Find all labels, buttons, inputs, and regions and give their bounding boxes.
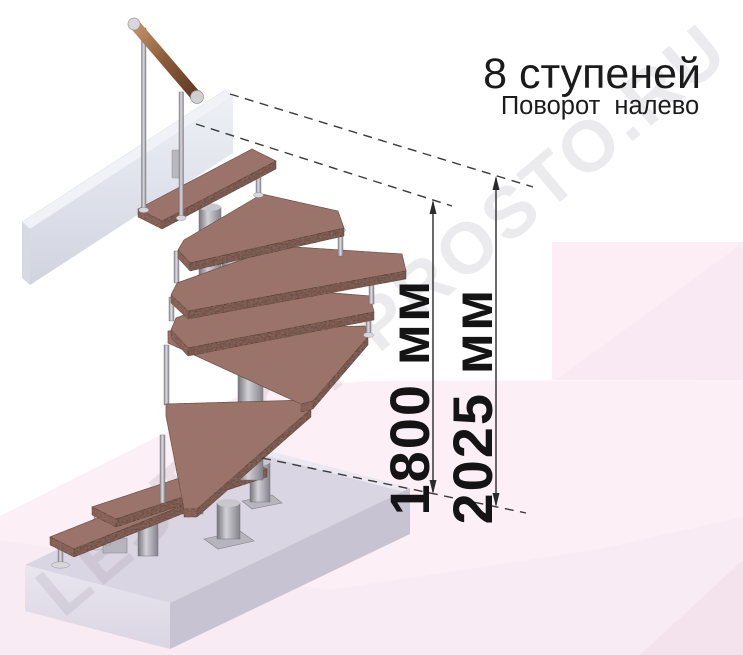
handrail-cap-top [128, 18, 140, 30]
post-knob [364, 333, 374, 338]
post-knob [254, 193, 264, 198]
baluster-base [139, 207, 149, 212]
page-subtitle: Поворот налево [501, 92, 699, 120]
diagram-canvas: LESTNICY-PROSTO.RU [0, 0, 743, 655]
page-title: 8 ступеней [483, 50, 701, 98]
dimension-label-2025: 2025 мм [441, 288, 504, 525]
support-column-top [217, 499, 240, 507]
baluster [142, 28, 147, 211]
slab-end-face [22, 222, 30, 285]
tread-end [184, 509, 197, 517]
baluster-base [176, 215, 186, 220]
header: 8 ступеней Поворот налево [483, 50, 701, 120]
staircase-diagram: LESTNICY-PROSTO.RU [0, 0, 743, 655]
handrail-cap-bottom [191, 91, 204, 104]
support-column [217, 503, 240, 539]
inner-post [160, 435, 165, 503]
dimension-label-1800: 1800 мм [378, 279, 441, 516]
support-foot [52, 562, 70, 568]
baluster [179, 92, 184, 219]
inner-post [164, 345, 169, 405]
